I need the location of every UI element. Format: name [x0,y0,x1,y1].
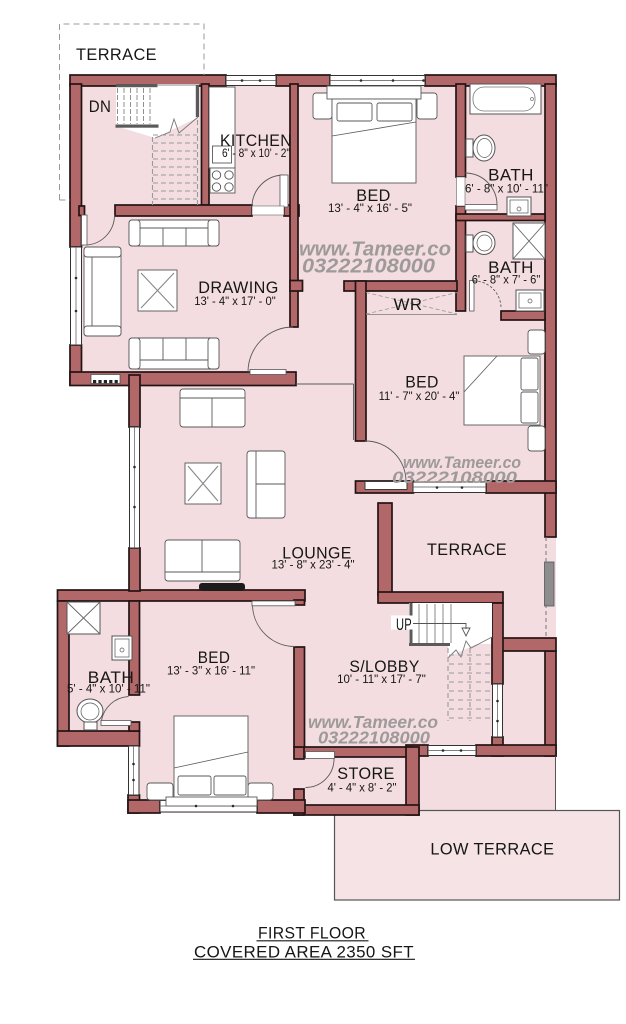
svg-text:03222108000: 03222108000 [392,468,518,487]
svg-text:13' - 3" x 16' - 11": 13' - 3" x 16' - 11" [167,664,255,678]
svg-text:11' - 7" x 20' - 4": 11' - 7" x 20' - 4" [379,389,460,403]
svg-text:DN: DN [89,98,112,116]
svg-text:03222108000: 03222108000 [302,255,436,278]
svg-text:13' - 4" x 17' - 0": 13' - 4" x 17' - 0" [194,294,275,308]
svg-text:6' - 8" x 10' - 2": 6' - 8" x 10' - 2" [222,146,290,160]
svg-text:FIRST FLOOR: FIRST FLOOR [258,925,366,943]
svg-text:LOW TERRACE: LOW TERRACE [430,841,554,859]
svg-text:6' - 8" x 7' - 6": 6' - 8" x 7' - 6" [472,273,541,287]
svg-text:4' - 4" x 8' - 2": 4' - 4" x 8' - 2" [328,781,397,795]
svg-text:TERRACE: TERRACE [427,541,507,559]
svg-text:03222108000: 03222108000 [318,728,430,748]
svg-text:UP: UP [396,616,412,634]
svg-text:6' - 8" x 10' - 11": 6' - 8" x 10' - 11" [465,182,548,196]
svg-text:13' - 4" x 16' - 5": 13' - 4" x 16' - 5" [328,201,412,215]
svg-text:13' - 8" x 23' - 4": 13' - 8" x 23' - 4" [272,558,355,572]
svg-text:10' - 11" x 17' - 7": 10' - 11" x 17' - 7" [337,672,426,686]
svg-text:WR: WR [394,296,423,314]
svg-text:5' - 4" x 10' - 11": 5' - 4" x 10' - 11" [67,682,150,696]
svg-text:TERRACE: TERRACE [76,46,157,64]
